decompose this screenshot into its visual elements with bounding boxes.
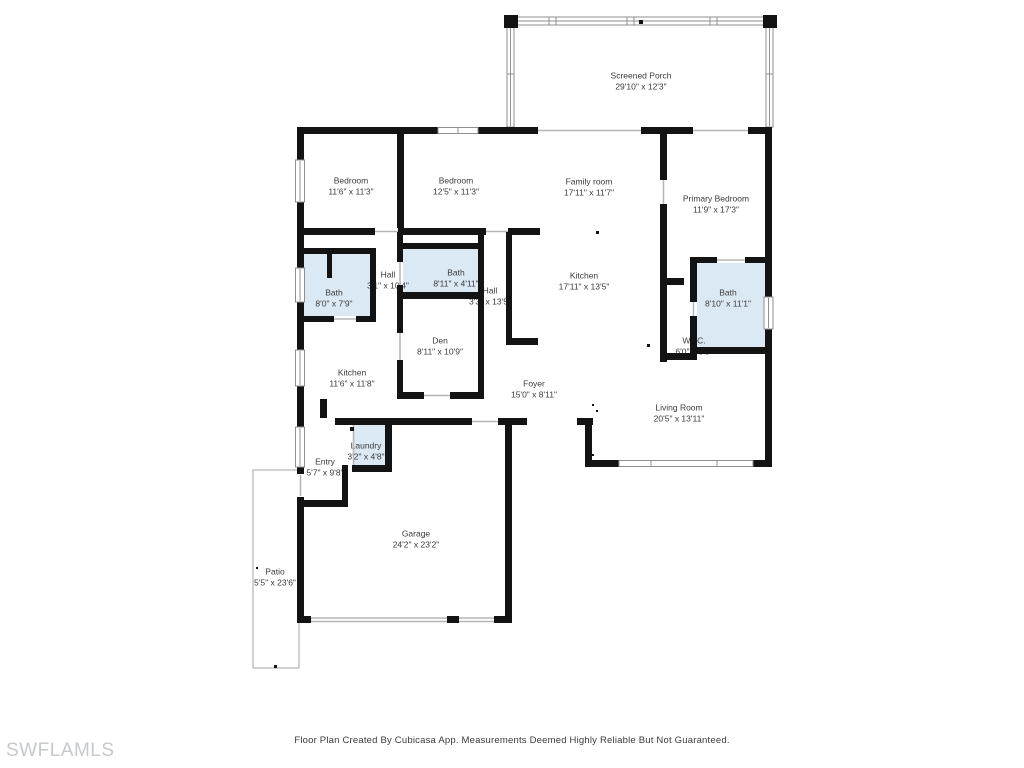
screened-porch-walls [504,15,777,127]
floor-plan-page: Screened Porch29'10" x 12'3" Bedroom11'6… [0,0,1024,768]
footer-disclaimer: Floor Plan Created By Cubicasa App. Meas… [0,735,1024,746]
window-shapes [296,128,774,498]
mls-watermark: SWFLAMLS [6,740,115,762]
tick-marks [592,231,650,456]
interior-walls [297,134,772,507]
floor-plan-walls-layer [0,0,1024,768]
exterior-walls [297,127,772,623]
